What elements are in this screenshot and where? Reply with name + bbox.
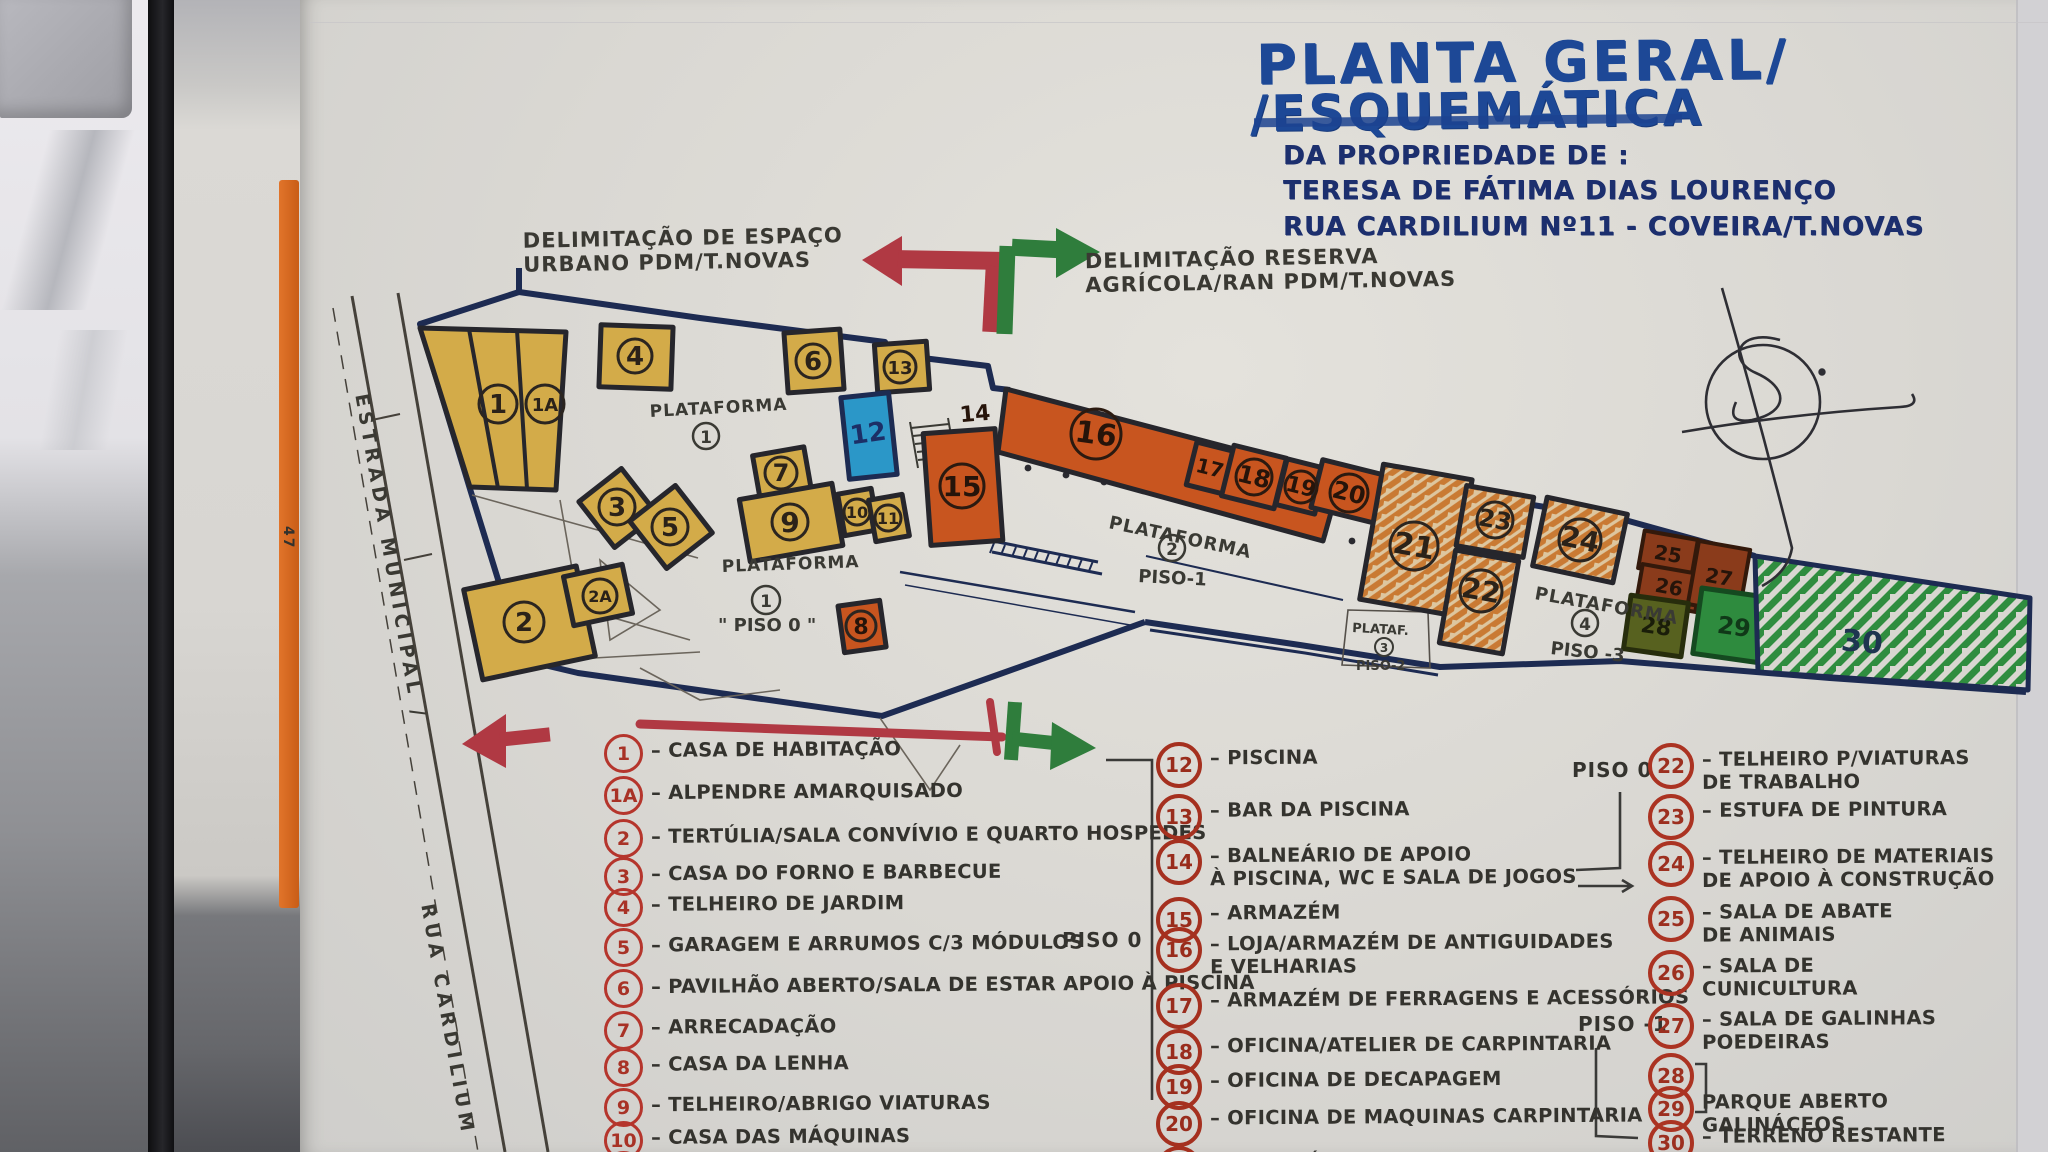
legend-item-label: – CASA DO FORNO E BARBECUE [651,856,1002,885]
platform-label: PLATAF. [1352,621,1409,639]
north-compass-icon [1682,288,1914,586]
legend-number-badge: 2 [604,819,643,858]
legend-item-label: – CASA DAS MÁQUINAS [651,1120,910,1149]
section-arrow-green-icon [1004,702,1096,770]
building-label: 27 [1703,563,1735,591]
building-label: 26 [1653,573,1685,601]
legend-item-label: – ALPENDRE AMARQUISADO [651,775,963,804]
legend-item-label: – BALNEÁRIO DE APOIO À PISCINA, WC E SAL… [1210,838,1577,891]
legend-item-21: 21– ARMAZÉM DE ESTALEIRO PISO-2 [1156,1146,1590,1152]
legend-number-badge: 17 [1156,983,1202,1029]
building-label: 21 [1390,526,1437,568]
legend-item-label: – TERTÚLIA/SALA CONVÍVIO E QUARTO HOSPED… [651,817,1207,848]
building-label: 1A [532,395,559,416]
legend-item-1A: 1A– ALPENDRE AMARQUISADO [604,776,963,815]
legend-number-badge: 24 [1648,841,1694,887]
legend-number-badge: 7 [604,1011,643,1050]
building-label: 5 [661,513,679,543]
legend-item-23: 23– ESTUFA DE PINTURA [1648,794,1947,840]
legend-number-badge: 22 [1648,743,1694,789]
building-label: 2A [588,587,612,606]
legend-number-badge: 27 [1648,1003,1694,1049]
legend-item-10: 10– CASA DAS MÁQUINAS [604,1121,910,1152]
legend-number-badge: 1 [604,734,643,773]
legend-item-25: 25– SALA DE ABATE DE ANIMAIS [1648,896,1893,946]
legend-item-30: 30– TERRENO RESTANTE [1648,1120,1946,1152]
legend-number-badge: 5 [604,928,643,967]
legend-item-8: 8– CASA DA LENHA [604,1048,849,1087]
building-label: 7 [773,459,790,487]
legend-item-label: – OFICINA DE DECAPAGEM [1210,1063,1502,1092]
legend-item-label: – ESTUFA DE PINTURA [1702,793,1947,822]
platform-number: 1 [700,428,712,448]
platform-label: PLATAFORMA [721,552,859,577]
platform-piso: PISO-1 [1138,566,1207,591]
building-label: 25 [1652,540,1684,568]
platform-number: 3 [1380,641,1388,655]
site-plan-photo: 47 [0,0,2048,1152]
legend-number-badge: 14 [1156,839,1202,885]
building-label: 15 [943,470,982,503]
legend-number-badge: 10 [604,1121,643,1152]
legend-item-label: – PISCINA [1210,742,1318,770]
platform-piso: " PISO 0 " [718,615,816,636]
owner-address: RUA CARDILIUM Nº11 - COVEIRA/T.NOVAS [1283,212,1924,242]
platform-number: 2 [1166,540,1178,560]
legend-item-label: – SALA DE ABATE DE ANIMAIS [1702,895,1893,946]
platform-number: 1 [760,592,772,612]
legend-number-badge: 8 [604,1048,643,1087]
building-label: 10 [846,503,868,522]
legend-item-20: 20– OFICINA DE MAQUINAS CARPINTARIA [1156,1101,1643,1147]
building-label: 16 [1073,414,1119,454]
platform-label: PLATAFORMA [649,395,788,422]
piso0-tag-col3: PISO 0 [1572,758,1652,782]
legend-item-label: – CASA DA LENHA [651,1047,849,1075]
building-label: 3 [608,493,626,523]
legend-number-badge: 1A [604,776,643,815]
urban-delim-arrow-icon [862,236,1003,332]
building-label: 4 [626,342,644,372]
building-label: 2 [515,608,533,638]
legend-item-label: – ARMAZÉM DE ESTALEIRO PISO-2 [1210,1145,1590,1152]
building-label: 14 [959,401,992,429]
building-label: 11 [877,509,899,528]
legend-number-badge: 12 [1156,742,1202,788]
legend-item-label: – GARAGEM E ARRUMOS C/3 MÓDULOS [651,926,1084,956]
legend-item-label: – CASA DE HABITAÇÃO [651,733,901,762]
retaining-wall [900,540,1343,625]
building-label: 13 [887,358,912,379]
section-arrow-red-icon [462,714,551,768]
legend-number-badge: 30 [1648,1120,1694,1152]
urban-delimitation-label: DELIMITAÇÃO DE ESPAÇO URBANO PDM/T.NOVAS [523,223,844,277]
legend-item-label: – OFICINA/ATELIER DE CARPINTARIA [1210,1028,1611,1058]
building-label: 30 [1840,623,1885,662]
legend-item-label: – TELHEIRO P/VIATURAS DE TRABALHO [1702,742,1970,794]
building-label: 29 [1716,611,1753,643]
building-label: 9 [780,506,799,539]
legend-item-label: – SALA DE GALINHAS POEDEIRAS [1702,1002,1937,1054]
page-title-line2: /ESQUEMÁTICA [1250,79,1705,143]
building-label: 22 [1459,571,1503,610]
legend-number-badge: 4 [604,888,643,927]
legend-item-13: 13– BAR DA PISCINA [1156,794,1410,840]
legend-number-badge: 16 [1156,927,1202,973]
building-label: 8 [853,615,868,640]
building-label: 23 [1476,503,1514,536]
legend-item-label: – OFICINA DE MAQUINAS CARPINTARIA [1210,1099,1643,1129]
legend-item-5: 5– GARAGEM E ARRUMOS C/3 MÓDULOS [604,928,1084,967]
legend-item-label: – LOJA/ARMAZÉM DE ANTIGUIDADES E VELHARI… [1210,926,1614,979]
legend-item-label: – BAR DA PISCINA [1210,793,1410,821]
platform-number: 4 [1579,615,1591,635]
legend-item-16: 16– LOJA/ARMAZÉM DE ANTIGUIDADES E VELHA… [1156,927,1614,977]
legend-item-4: 4– TELHEIRO DE JARDIM [604,888,904,927]
legend-item-label: – ARMAZÉM DE FERRAGENS E ACESSÓRIOS [1210,981,1690,1011]
ran-delimitation-label: DELIMITAÇÃO RESERVA AGRÍCOLA/RAN PDM/T.N… [1085,243,1457,297]
platform-piso: PISO-2 [1356,659,1405,674]
legend-number-badge: 6 [604,969,643,1008]
owner-name: TERESA DE FÁTIMA DIAS LOURENÇO [1283,176,1837,206]
legend-item-label: – ARMAZÉM [1210,897,1341,925]
legend-item-1: 1– CASA DE HABITAÇÃO [604,734,901,773]
legend-number-badge: 21 [1156,1146,1202,1152]
legend-number-badge: 26 [1648,950,1694,996]
building-label: 6 [804,347,822,377]
legend-item-22: 22– TELHEIRO P/VIATURAS DE TRABALHO [1648,743,1970,793]
legend-item-label: – TELHEIRO DE JARDIM [651,887,905,916]
owner-intro: DA PROPRIEDADE DE : [1283,141,1629,171]
legend-number-badge: 23 [1648,794,1694,840]
legend-item-2: 2– TERTÚLIA/SALA CONVÍVIO E QUARTO HOSPE… [604,819,1207,858]
building-label: 1 [489,390,507,420]
building-label: 12 [848,417,888,452]
legend-item-14: 14– BALNEÁRIO DE APOIO À PISCINA, WC E S… [1156,839,1577,889]
legend-number-badge: 13 [1156,794,1202,840]
legend-item-27: 27– SALA DE GALINHAS POEDEIRAS [1648,1003,1936,1053]
legend-item-12: 12– PISCINA [1156,742,1318,788]
legend-item-label: – TELHEIRO/ABRIGO VIATURAS [651,1087,991,1116]
legend-item-label: – TERRENO RESTANTE [1702,1119,1946,1148]
legend-number-badge: 20 [1156,1101,1202,1147]
legend-item-7: 7– ARRECADAÇÃO [604,1011,837,1050]
legend-item-label: – TELHEIRO DE MATERIAIS DE APOIO À CONST… [1702,840,1995,892]
legend-number-badge: 25 [1648,896,1694,942]
legend-item-label: – ARRECADAÇÃO [651,1010,837,1038]
area-30 [1755,556,2030,690]
legend-item-label: – SALA DE CUNICULTURA [1702,949,1858,1000]
legend-item-26: 26– SALA DE CUNICULTURA [1648,950,1858,1000]
legend-item-24: 24– TELHEIRO DE MATERIAIS DE APOIO À CON… [1648,841,1994,891]
legend-item-17: 17– ARMAZÉM DE FERRAGENS E ACESSÓRIOS [1156,983,1689,1029]
